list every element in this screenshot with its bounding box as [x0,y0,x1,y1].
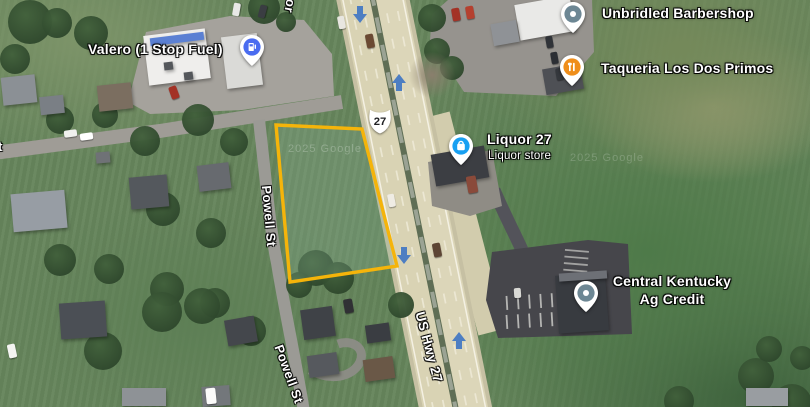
road-label-powell-st-upper: Powell St [259,185,279,247]
us-route-27-shield-icon: 27 [365,106,395,136]
road-label-cutoff-top: or [281,0,298,14]
place-sublabel-liquor-store[interactable]: Liquor store [488,150,551,162]
road-label-powell-st-lower: Powell St [271,343,306,406]
place-label-liquor27[interactable]: Liquor 27 [487,131,552,147]
place-label-barbershop[interactable]: Unbridled Barbershop [602,5,754,21]
google-watermark: 2025 Google [288,143,362,155]
gas-station-pin-icon[interactable] [239,34,265,67]
place-label-valero[interactable]: Valero (1 Stop Fuel) [88,41,223,57]
road-label-cutoff-left: t [0,139,3,154]
liquor-store-pin-icon[interactable] [448,133,474,166]
barbershop-pin-icon[interactable] [560,1,586,34]
google-watermark: 2025 Google [570,152,644,164]
route-shield-number: 27 [374,116,387,128]
satellite-map[interactable]: 2025 Google 2025 Google 27 Powell St Pow… [0,0,810,407]
place-label-agcredit[interactable]: Central Kentucky Ag Credit [606,273,738,308]
road-label-us-hwy-27: US Hwy 27 [412,310,445,384]
agcredit-pin-icon[interactable] [573,280,599,313]
agcredit-line1: Central Kentucky [606,273,738,291]
place-label-taqueria[interactable]: Taqueria Los Dos Primos [601,60,773,76]
restaurant-pin-icon[interactable] [559,54,585,87]
agcredit-line2: Ag Credit [606,291,738,309]
